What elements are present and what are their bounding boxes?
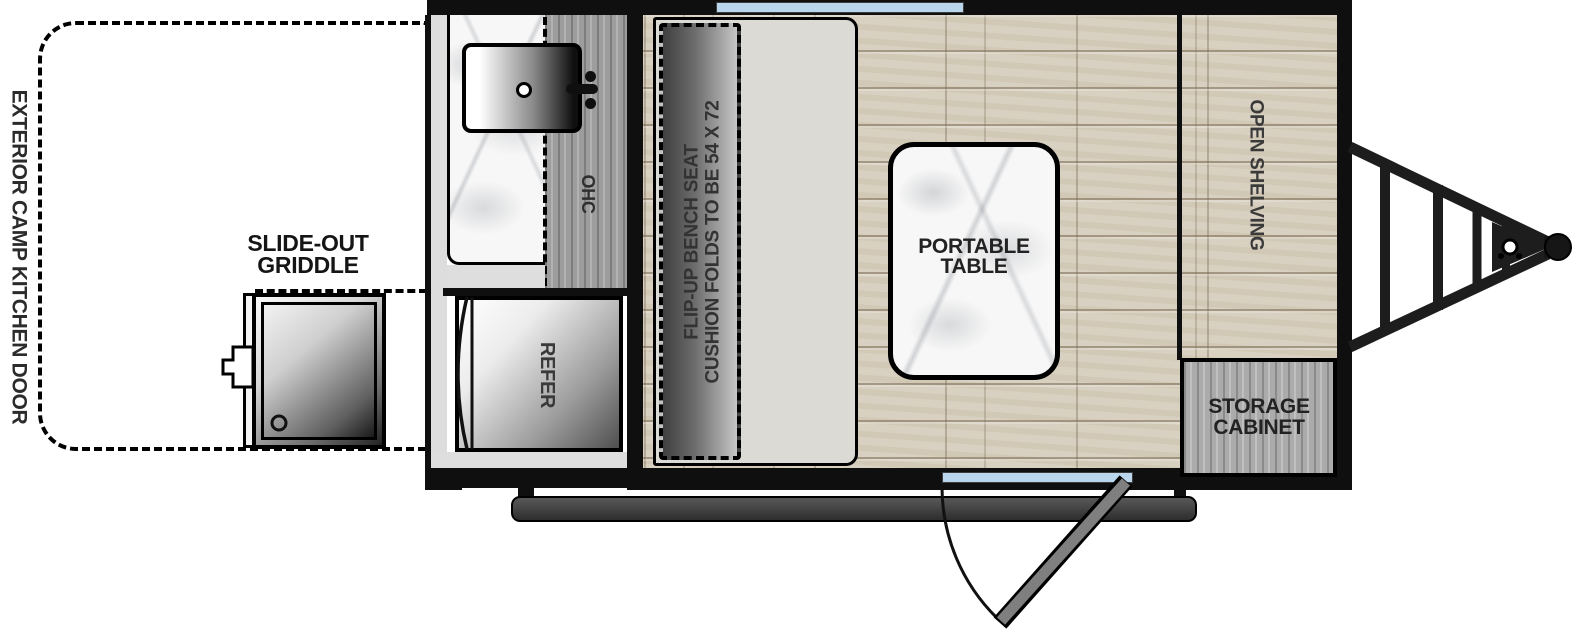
entry-door-window (942, 472, 1133, 483)
storage-label: STORAGE CABINET (1208, 396, 1309, 438)
right-wall (1337, 0, 1352, 490)
faucet-icon (566, 84, 598, 94)
floorplan-stage: EXTERIOR CAMP KITCHEN DOOR SLIDE-OUT GRI… (0, 0, 1575, 631)
exterior-door-label: EXTERIOR CAMP KITCHEN DOOR (9, 90, 30, 425)
griddle-label: SLIDE-OUT GRIDDLE (247, 233, 368, 277)
hitch-coupler-stem (1544, 236, 1556, 258)
hitch-coupler-ball (1545, 234, 1571, 260)
table-label: PORTABLE TABLE (918, 237, 1030, 277)
slide-out-griddle (252, 293, 386, 449)
sink-drain-icon (516, 82, 532, 98)
refer-label: REFER (537, 342, 557, 408)
griddle-inner-frame (261, 302, 377, 440)
tongue-hitch (1350, 147, 1571, 347)
kitchen-floor-strip-bottom (431, 452, 627, 468)
bench-label: FLIP-UP BENCH SEAT CUSHION FOLDS TO BE 5… (682, 82, 725, 402)
faucet-handle-top-icon (585, 71, 596, 82)
open-shelving-divider (1177, 15, 1182, 360)
camp-door-opening (431, 15, 447, 466)
tongue-jack-icon (1503, 240, 1517, 254)
kitchen-divider (443, 288, 643, 296)
top-window (716, 2, 964, 13)
faucet-handle-bottom-icon (585, 98, 596, 109)
open-shelving-label: OPEN SHELVING (1247, 100, 1266, 251)
cabin-left-wall (627, 15, 643, 468)
hitch-tip (1492, 222, 1550, 272)
entry-step (511, 496, 1197, 522)
ohc-label: OHC (579, 174, 597, 213)
kitchen-floor-strip (447, 265, 545, 288)
